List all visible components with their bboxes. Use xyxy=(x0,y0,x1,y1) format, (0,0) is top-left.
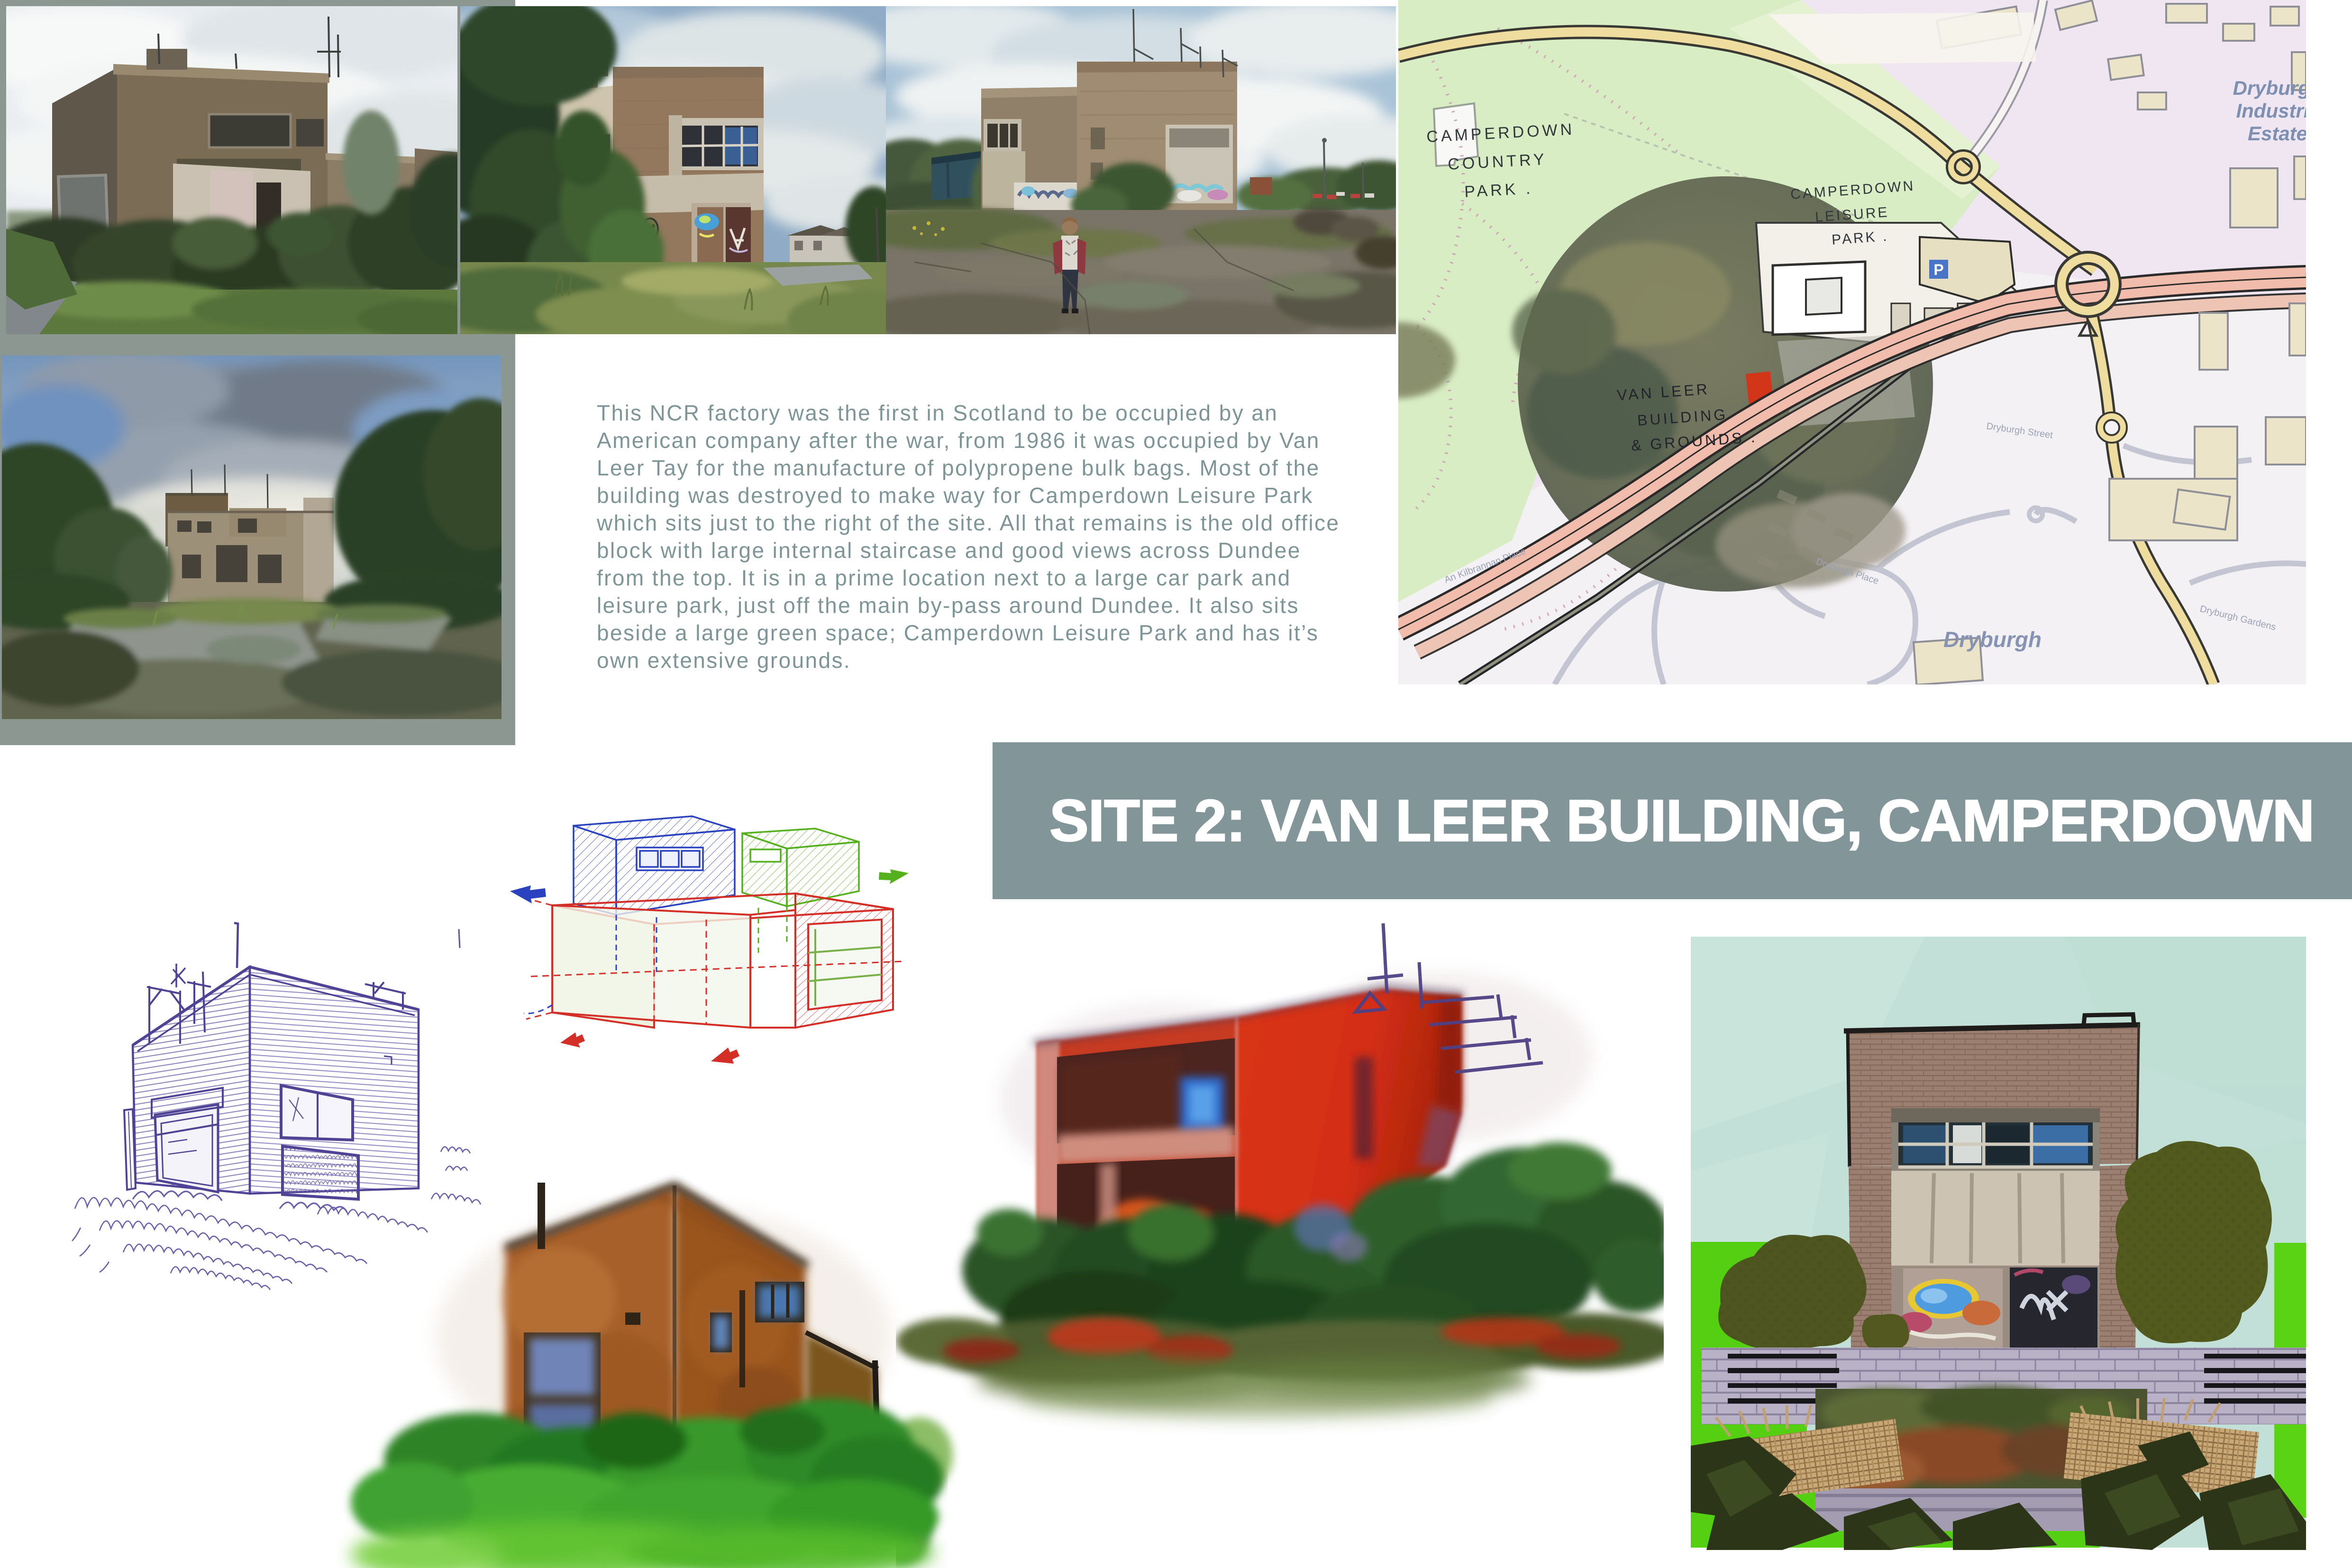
svg-text:Estate: Estate xyxy=(2248,122,2306,145)
svg-text:PARK .: PARK . xyxy=(1464,179,1533,201)
svg-text:Dryburgh: Dryburgh xyxy=(2233,77,2306,99)
svg-text:Industrial: Industrial xyxy=(2236,100,2306,122)
svg-text:P: P xyxy=(1933,261,1943,278)
svg-text:Dryburgh: Dryburgh xyxy=(1943,627,2042,652)
